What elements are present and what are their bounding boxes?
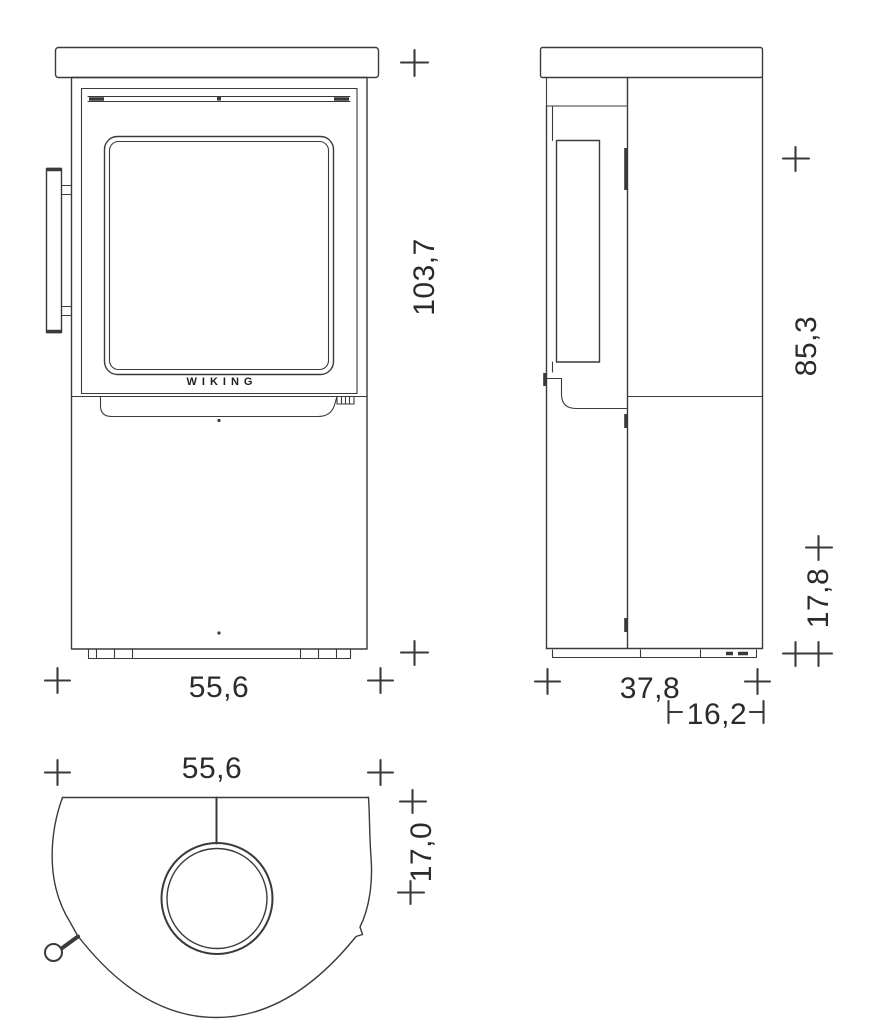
flue-collar-inner xyxy=(167,849,267,949)
dimension-tick-right xyxy=(745,669,770,694)
flue-collar-outer xyxy=(162,843,273,954)
dim-top-flue-center-label: 17,0 xyxy=(405,822,438,882)
handle-bar xyxy=(47,169,62,333)
dimension-tick-left xyxy=(535,669,560,694)
front-door-handle xyxy=(47,169,72,333)
side-glass xyxy=(557,141,600,363)
dimension-tick-top xyxy=(783,147,809,171)
dim-top-flue-center: 17,0 xyxy=(398,790,438,904)
dim-side-depth-label: 37,8 xyxy=(620,672,680,705)
front-view: WIKING xyxy=(47,48,379,659)
dimension-tick-bottom xyxy=(398,881,424,904)
front-ash-lip xyxy=(101,397,338,417)
dimension-tick-left xyxy=(45,668,70,693)
front-vent-center-mark xyxy=(217,97,221,101)
front-door-frame xyxy=(82,89,358,394)
dimension-tick-left xyxy=(45,760,70,785)
front-base-feet xyxy=(89,649,351,659)
dimension-tick-top xyxy=(806,536,832,560)
side-top-plate xyxy=(541,48,763,78)
dim-front-height-label: 103,7 xyxy=(408,238,441,316)
dim-front-width: 55,6 xyxy=(45,668,393,704)
dim-side-height-label: 85,3 xyxy=(790,316,823,376)
dim-front-width-label: 55,6 xyxy=(189,671,249,704)
dimension-tick-bottom xyxy=(401,641,428,665)
dim-side-lower-height-label: 17,8 xyxy=(802,568,835,628)
dimension-tick-top xyxy=(401,50,428,76)
dim-top-width-label: 55,6 xyxy=(182,752,242,785)
dim-front-height: 103,7 xyxy=(401,50,441,665)
dimension-tick-right xyxy=(368,668,393,693)
top-outline xyxy=(52,798,371,1018)
dim-side-flue-offset: 16,2 xyxy=(669,698,764,731)
drawing-canvas: WIKING 103,7 55,6 xyxy=(0,0,872,1024)
top-view xyxy=(45,798,372,1018)
top-handle-knob xyxy=(45,937,78,962)
dimension-tick-right xyxy=(750,701,764,723)
front-door-glass-outer xyxy=(105,137,334,375)
side-door-bottom-curve xyxy=(562,379,628,409)
side-view xyxy=(541,48,763,658)
front-door-glass-inner xyxy=(110,142,329,370)
side-door-top-block xyxy=(547,78,628,107)
handle-brackets xyxy=(62,186,72,316)
brand-logo: WIKING xyxy=(187,376,258,388)
dim-top-width: 55,6 xyxy=(45,752,393,785)
handle-end-caps xyxy=(47,170,61,332)
front-center-mark-lower xyxy=(217,631,220,634)
knob-stem xyxy=(62,937,79,949)
dimension-tick-bottom xyxy=(806,642,832,666)
front-body xyxy=(72,78,368,650)
front-door-latch xyxy=(337,397,354,405)
side-base-feet xyxy=(553,650,757,658)
front-center-mark-upper xyxy=(217,419,220,422)
dim-side-lower-height: 17,8 xyxy=(802,536,835,666)
dimension-tick-top xyxy=(400,790,426,813)
stove-dimension-drawing: WIKING 103,7 55,6 xyxy=(0,0,872,1024)
dim-side-flue-offset-label: 16,2 xyxy=(687,698,747,731)
front-top-plate xyxy=(56,48,379,78)
dimension-tick-right xyxy=(368,760,393,785)
knob-circle xyxy=(45,944,62,961)
